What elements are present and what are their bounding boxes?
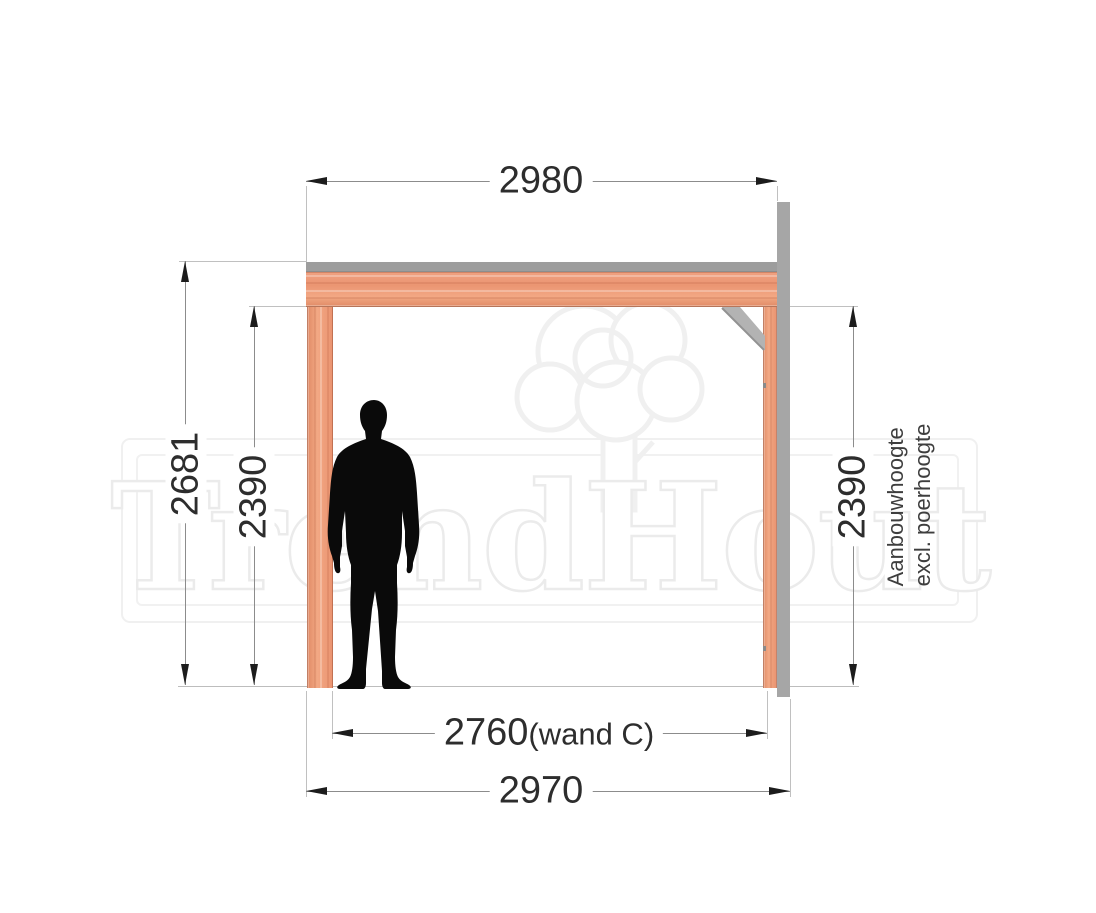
arrow-left-icon — [306, 787, 327, 795]
arrow-up-icon — [250, 306, 258, 327]
bolt-mark — [763, 646, 766, 651]
arrow-down-icon — [849, 664, 857, 685]
arrow-down-icon — [250, 664, 258, 685]
dim-inner-height-left-label: 2390 — [233, 448, 274, 547]
arrow-left-icon — [306, 177, 327, 185]
drawing-canvas: TrendHout 2980 2681 2390 — [0, 0, 1096, 913]
dim-outer-width-label: 2970 — [490, 770, 593, 811]
side-note-label: Aanbouwhoogte excl. poerhoogte — [882, 424, 936, 587]
dim-inner-width-label: 2760(wand C) — [435, 712, 663, 753]
arrow-up-icon — [849, 306, 857, 327]
dim-inner-height-right-label: 2390 — [832, 448, 873, 547]
dim-top-width-label: 2980 — [490, 160, 593, 201]
side-note-line2: excl. poerhoogte — [909, 424, 936, 587]
bolt-mark — [763, 383, 766, 388]
arrow-up-icon — [181, 261, 189, 282]
side-note-line1: Aanbouwhoogte — [882, 424, 909, 587]
arrow-right-icon — [756, 177, 777, 185]
dim-outer-height-label: 2681 — [165, 425, 206, 524]
arrow-right-icon — [746, 729, 767, 737]
person-silhouette — [320, 399, 430, 689]
arrow-right-icon — [769, 787, 790, 795]
dim-inner-width-value: 2760 — [444, 711, 529, 753]
dim-inner-width-suffix: (wand C) — [528, 716, 654, 751]
arrow-left-icon — [332, 729, 353, 737]
arrow-down-icon — [181, 664, 189, 685]
